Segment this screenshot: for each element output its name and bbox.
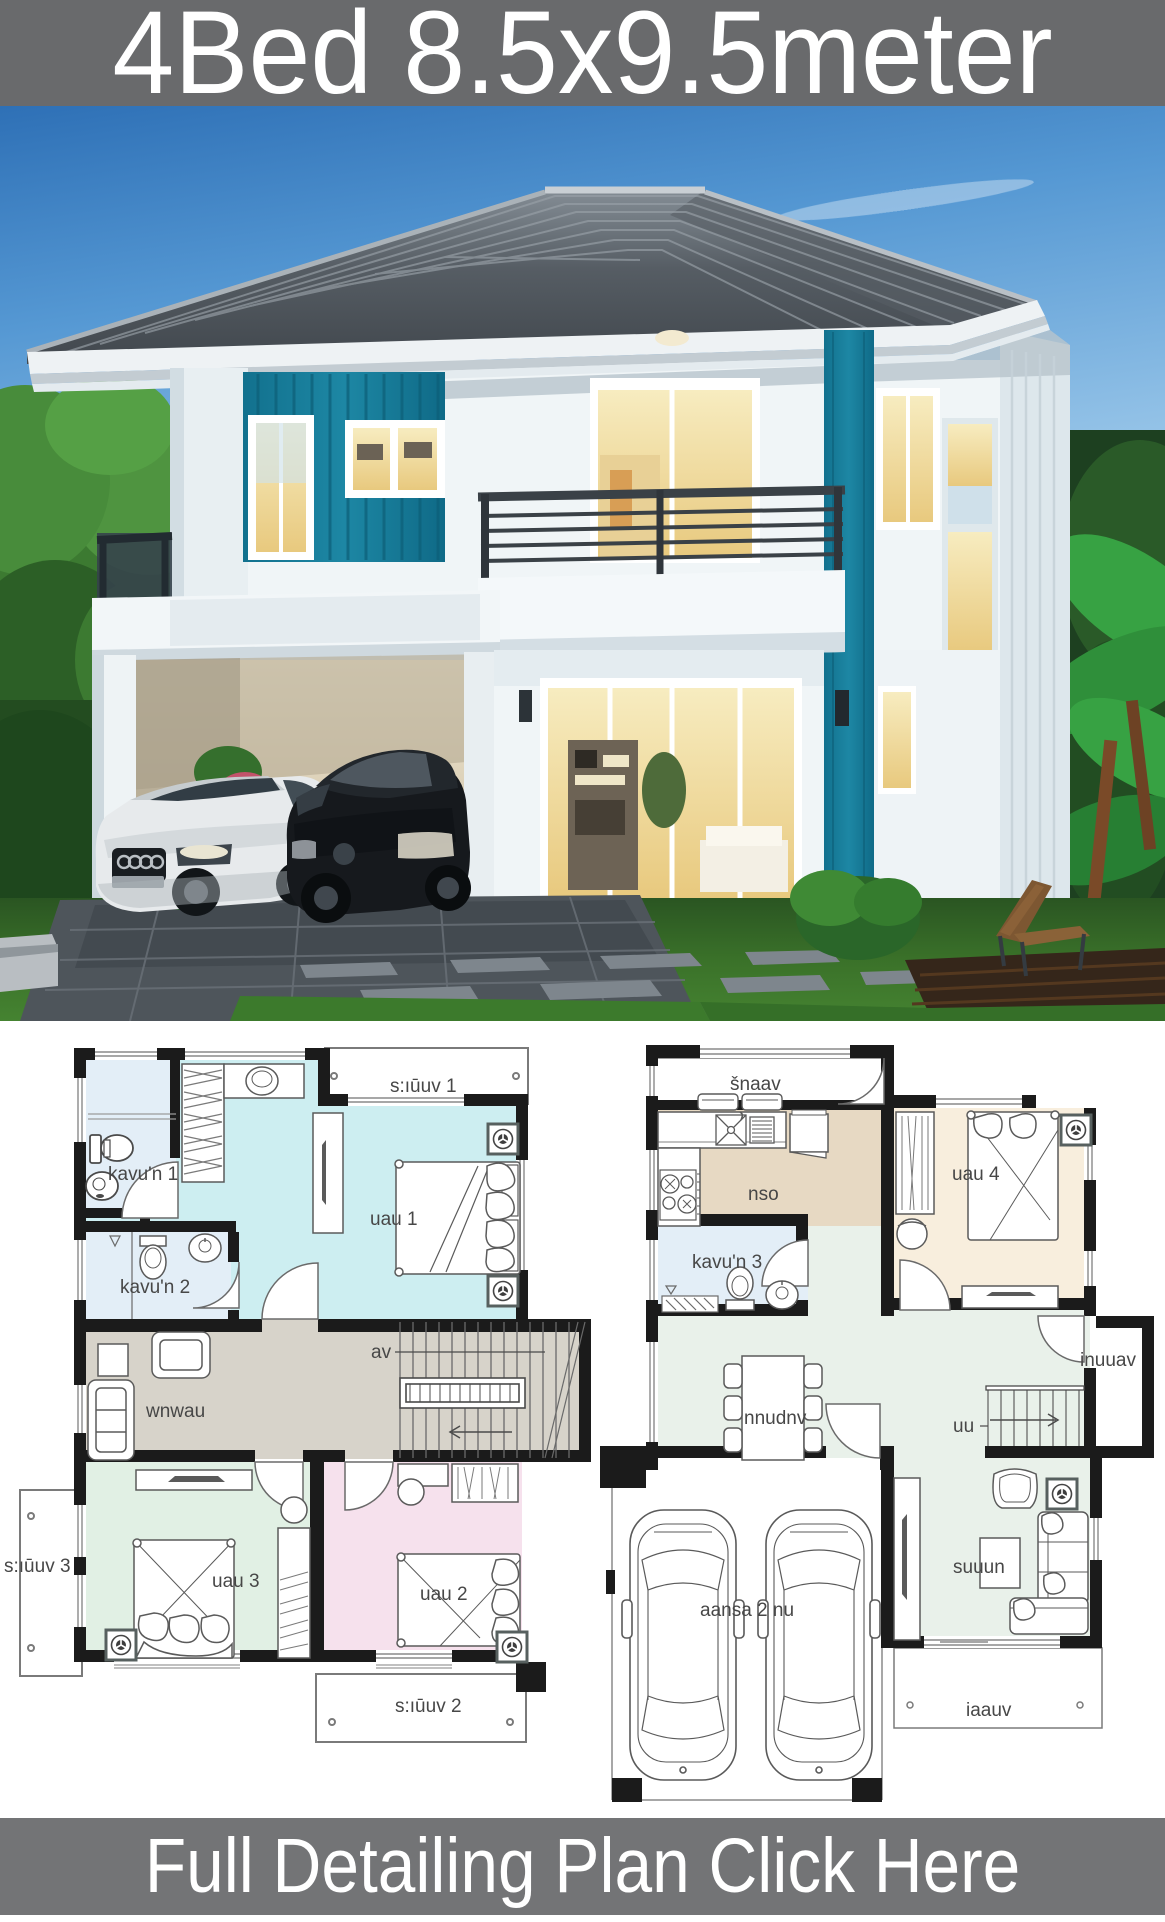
svg-text:aansa 2 nu: aansa 2 nu bbox=[700, 1600, 794, 1621]
svg-text:wnwau: wnwau bbox=[145, 1401, 205, 1422]
svg-text:nso: nso bbox=[748, 1184, 779, 1205]
svg-text:kavu'n 1: kavu'n 1 bbox=[108, 1164, 178, 1185]
svg-text:uau 2: uau 2 bbox=[420, 1584, 468, 1605]
svg-text:uu: uu bbox=[953, 1416, 974, 1437]
svg-text:uau 3: uau 3 bbox=[212, 1571, 260, 1592]
svg-text:av: av bbox=[371, 1342, 392, 1363]
svg-text:suuun: suuun bbox=[953, 1557, 1005, 1578]
svg-text:kavu'n 2: kavu'n 2 bbox=[120, 1277, 190, 1298]
svg-text:s:ıūuv 2: s:ıūuv 2 bbox=[395, 1696, 462, 1717]
svg-text:kavu'n 3: kavu'n 3 bbox=[692, 1252, 762, 1273]
svg-text:iaauv: iaauv bbox=[966, 1700, 1012, 1721]
svg-text:s:ıūuv 3: s:ıūuv 3 bbox=[4, 1556, 71, 1577]
svg-text:uau 1: uau 1 bbox=[370, 1209, 418, 1230]
svg-text:inuuav: inuuav bbox=[1080, 1350, 1136, 1371]
svg-text:nnudnv: nnudnv bbox=[744, 1408, 807, 1429]
svg-text:s:ıūuv 1: s:ıūuv 1 bbox=[390, 1076, 457, 1097]
svg-text:šnaav: šnaav bbox=[730, 1074, 781, 1095]
svg-text:uau 4: uau 4 bbox=[952, 1164, 1000, 1185]
